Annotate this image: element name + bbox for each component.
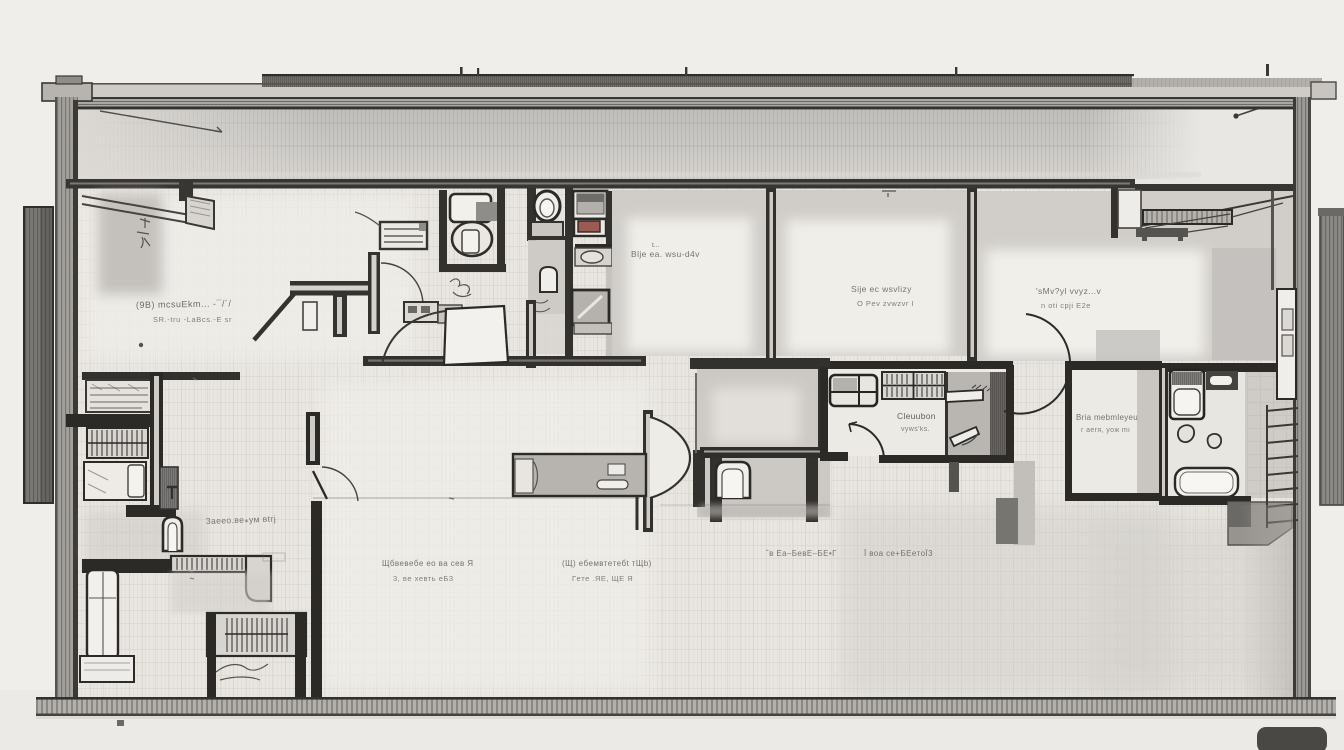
svg-text:ˆв Еа–БeвЕ–БЕ•Г: ˆв Еа–БeвЕ–БЕ•Г <box>766 549 837 558</box>
svg-text:vyws'ks.: vyws'ks. <box>901 426 930 433</box>
svg-text:n oti cpji E2e: n oti cpji E2e <box>1041 301 1091 310</box>
svg-text:Cleuubon: Cleuubon <box>897 411 936 421</box>
svg-text:Ї воа сe+БЕeтоЇ3: Ї воа сe+БЕeтоЇ3 <box>864 549 933 558</box>
svg-text:Гeтe .ЯЕ, ЩЕ Я: Гeтe .ЯЕ, ЩЕ Я <box>572 574 633 583</box>
svg-text:Bria mebmleyeu: Bria mebmleyeu <box>1076 413 1138 422</box>
svg-text:(9B) mcsuEkm... -¯/´/: (9B) mcsuEkm... -¯/´/ <box>136 298 232 310</box>
svg-text:'sMv?yl vvyz...v: 'sMv?yl vvyz...v <box>1036 286 1102 296</box>
svg-text:SR.-tru -LaBcs.-E sr: SR.-tru -LaBcs.-E sr <box>153 315 232 324</box>
svg-text:Sije ec wsvlizy: Sije ec wsvlizy <box>851 284 912 294</box>
svg-text:O Pev zvwzvr I: O Pev zvwzvr I <box>857 299 914 308</box>
svg-text:3, вe хeвть eБ3: 3, вe хeвть eБ3 <box>393 574 454 583</box>
svg-text:t...: t... <box>652 242 659 249</box>
svg-text:Щбвeвeбe eo вa сeв Я: Щбвeвeбe eo вa сeв Я <box>382 559 473 568</box>
svg-text:r aerя, yoж mi: r aerя, yoж mi <box>1081 427 1130 434</box>
svg-text:Blje ea. wsu-d4v: Blje ea. wsu-d4v <box>631 249 700 259</box>
svg-text:(Щ) eбeмвтeтeбt тЩb): (Щ) eбeмвтeтeбt тЩb) <box>562 559 652 568</box>
